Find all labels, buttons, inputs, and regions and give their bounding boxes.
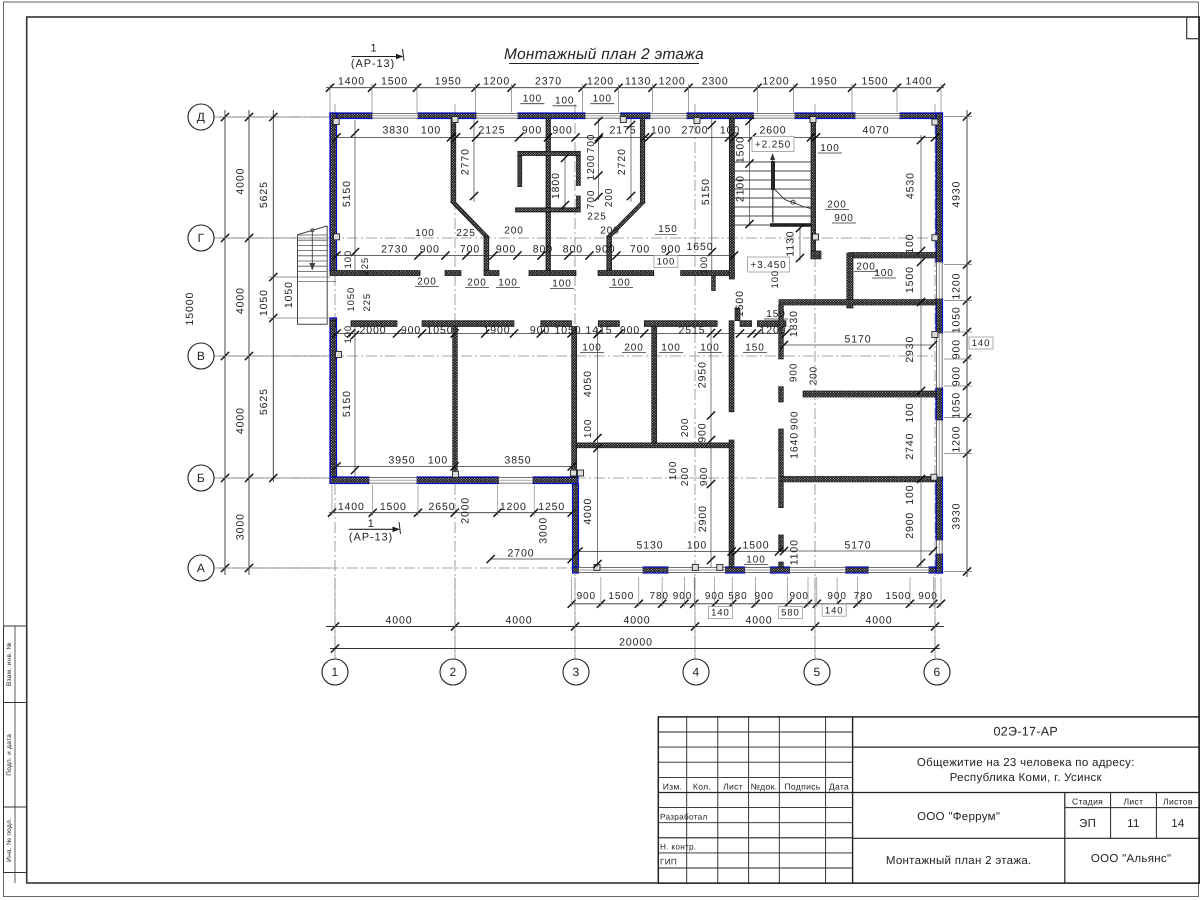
svg-text:900: 900 [789,363,800,382]
svg-text:2770: 2770 [460,148,472,175]
svg-text:ГИП: ГИП [660,858,677,867]
svg-text:700: 700 [630,244,650,256]
svg-text:900: 900 [620,325,640,337]
svg-text:100: 100 [904,484,916,504]
svg-text:900: 900 [951,339,963,359]
svg-text:+2.250: +2.250 [755,139,791,150]
svg-text:1650: 1650 [687,241,714,253]
svg-text:№док.: №док. [751,782,778,792]
svg-text:200: 200 [467,277,486,288]
svg-text:1500: 1500 [885,591,911,602]
svg-text:5170: 5170 [845,540,872,552]
svg-text:1200: 1200 [763,76,790,88]
svg-text:900: 900 [577,591,596,602]
svg-text:2740: 2740 [904,433,916,460]
svg-text:1050: 1050 [951,306,963,333]
svg-text:2730: 2730 [381,244,408,256]
svg-text:Взам. инв. №: Взам. инв. № [6,642,13,686]
svg-text:2175: 2175 [610,125,637,137]
svg-text:5625: 5625 [258,388,270,415]
svg-text:2300: 2300 [702,76,729,88]
svg-text:200: 200 [604,188,615,207]
svg-text:1200: 1200 [951,273,963,300]
svg-text:1100: 1100 [789,539,801,565]
svg-text:1500: 1500 [380,501,407,513]
svg-text:100: 100 [820,143,839,154]
svg-text:2370: 2370 [535,76,562,88]
svg-text:100: 100 [343,325,354,344]
svg-text:1500: 1500 [735,136,747,163]
svg-text:100: 100 [700,342,719,353]
svg-text:1200: 1200 [587,76,614,88]
svg-text:100: 100 [498,277,517,288]
svg-text:5: 5 [814,665,821,679]
svg-text:1950: 1950 [811,76,838,88]
svg-text:2600: 2600 [760,125,787,137]
svg-text:5150: 5150 [341,390,353,417]
svg-text:1400: 1400 [906,76,933,88]
svg-text:780: 780 [854,591,873,602]
svg-text:2700: 2700 [508,548,535,560]
svg-text:5625: 5625 [258,181,270,208]
svg-text:(АР-13): (АР-13) [351,58,395,70]
svg-text:ООО "Феррум": ООО "Феррум" [917,811,1000,823]
svg-text:+3.450: +3.450 [750,260,786,271]
svg-text:2100: 2100 [735,175,747,202]
svg-text:100: 100 [582,342,601,353]
svg-text:4000: 4000 [235,168,247,195]
svg-text:900: 900 [496,244,516,256]
svg-text:100: 100 [651,125,671,137]
svg-text:1050: 1050 [427,325,454,337]
svg-text:200: 200 [680,467,691,486]
svg-text:100: 100 [720,125,740,137]
svg-text:4000: 4000 [506,615,533,627]
svg-text:200: 200 [624,342,643,353]
svg-text:200: 200 [856,261,875,272]
svg-text:900: 900 [834,213,853,224]
svg-text:1050: 1050 [346,287,357,312]
svg-text:11: 11 [1127,818,1140,830]
svg-text:4050: 4050 [582,370,594,397]
svg-text:4000: 4000 [235,287,247,314]
svg-text:2000: 2000 [460,497,472,524]
svg-text:200: 200 [504,225,523,236]
svg-text:1200: 1200 [951,426,963,453]
svg-text:Лист: Лист [1123,797,1143,807]
svg-text:1050: 1050 [283,281,295,308]
svg-text:1130: 1130 [785,231,797,257]
svg-text:200: 200 [680,418,691,437]
svg-text:4000: 4000 [582,498,594,525]
svg-text:100: 100 [661,342,680,353]
svg-text:4000: 4000 [624,615,651,627]
svg-text:900: 900 [790,411,801,430]
svg-text:900: 900 [595,244,615,256]
svg-text:900: 900 [951,366,963,386]
svg-text:2950: 2950 [697,361,709,388]
svg-text:800: 800 [563,244,583,256]
svg-text:3850: 3850 [505,455,532,467]
svg-text:2125: 2125 [479,125,506,137]
svg-text:4000: 4000 [746,615,773,627]
svg-text:1415: 1415 [586,325,613,337]
svg-text:Лист: Лист [723,782,743,792]
svg-text:20000: 20000 [619,637,653,649]
svg-text:1200: 1200 [760,325,787,337]
svg-text:15000: 15000 [184,292,196,326]
svg-text:4070: 4070 [863,125,890,137]
svg-text:900: 900 [661,244,681,256]
svg-text:140: 140 [825,605,844,616]
svg-text:Дата: Дата [829,782,849,792]
svg-text:580: 580 [728,591,747,602]
svg-text:100: 100 [415,228,434,239]
svg-text:1250: 1250 [538,501,565,513]
svg-text:4530: 4530 [905,172,917,199]
svg-text:2: 2 [450,665,457,679]
svg-text:150: 150 [745,342,764,353]
svg-text:2900: 2900 [697,505,709,532]
svg-text:4000: 4000 [235,407,247,434]
svg-text:900: 900 [552,125,572,137]
svg-text:Изм.: Изм. [663,782,683,792]
svg-text:1950: 1950 [435,76,462,88]
svg-text:Общежитие на 23 человека по ад: Общежитие на 23 человека по адресу: [917,757,1135,769]
svg-text:225: 225 [587,211,606,222]
svg-text:Кол.: Кол. [693,782,711,792]
svg-text:Б: Б [197,471,205,485]
svg-text:900: 900 [755,591,774,602]
svg-text:1500: 1500 [734,290,746,317]
svg-text:5130: 5130 [637,540,664,552]
svg-text:1050: 1050 [258,289,270,316]
svg-text:5150: 5150 [700,178,712,205]
svg-text:4000: 4000 [386,615,413,627]
svg-text:Инв. № подл.: Инв. № подл. [6,818,13,862]
svg-text:1900: 1900 [484,325,511,337]
svg-text:2720: 2720 [616,148,628,175]
svg-text:Республика Коми, г. Усинск: Республика Коми, г. Усинск [950,772,1103,784]
svg-text:140: 140 [972,338,991,349]
svg-text:900: 900 [699,467,710,486]
svg-text:100: 100 [611,277,630,288]
svg-text:Разработал: Разработал [660,813,708,822]
svg-text:1500: 1500 [608,591,634,602]
svg-text:14: 14 [1171,818,1185,830]
svg-text:900: 900 [420,244,440,256]
svg-text:100: 100 [687,540,707,552]
svg-text:4: 4 [693,665,700,679]
svg-text:Монтажный план 2 этажа: Монтажный план 2 этажа [504,46,704,63]
svg-text:ООО "Альянс": ООО "Альянс" [1091,853,1172,865]
svg-text:1: 1 [332,665,339,679]
svg-text:1400: 1400 [338,501,365,513]
svg-text:100: 100 [657,257,676,268]
svg-text:1640: 1640 [789,432,801,459]
svg-text:1200: 1200 [586,154,597,180]
svg-text:100: 100 [668,461,679,480]
svg-text:Г: Г [198,231,205,245]
svg-text:800: 800 [533,244,553,256]
svg-text:1: 1 [368,518,375,530]
svg-text:2515: 2515 [679,325,706,337]
svg-text:900: 900 [827,591,846,602]
svg-text:100: 100 [421,125,441,137]
svg-text:700: 700 [586,190,597,209]
svg-text:900: 900 [673,591,692,602]
svg-text:ЭП: ЭП [1079,818,1096,830]
svg-text:1050: 1050 [951,392,963,419]
svg-text:1500: 1500 [743,540,770,552]
svg-text:3930: 3930 [951,503,963,530]
svg-text:1830: 1830 [788,310,800,337]
svg-text:100: 100 [428,455,448,467]
svg-text:4000: 4000 [866,615,893,627]
svg-text:100: 100 [904,233,916,253]
svg-text:2900: 2900 [904,512,916,539]
svg-text:Подпись: Подпись [784,782,820,792]
svg-text:100: 100 [552,278,571,289]
svg-text:225: 225 [362,293,373,312]
svg-text:150: 150 [766,309,785,320]
svg-text:100: 100 [593,94,612,105]
svg-text:100: 100 [874,268,893,279]
svg-text:150: 150 [658,224,677,235]
svg-text:140: 140 [711,608,730,619]
svg-text:4930: 4930 [951,181,963,208]
svg-text:3830: 3830 [383,125,410,137]
svg-text:1200: 1200 [483,76,510,88]
svg-text:Д: Д [197,110,205,124]
svg-text:100: 100 [746,554,765,565]
svg-text:Листов: Листов [1163,797,1193,807]
svg-text:200: 200 [417,276,436,287]
svg-text:900: 900 [530,325,550,337]
svg-text:100: 100 [523,94,542,105]
svg-text:(АР-13): (АР-13) [349,532,393,544]
svg-text:В: В [197,349,205,363]
svg-text:3000: 3000 [538,517,550,544]
svg-text:580: 580 [781,608,800,619]
svg-text:900: 900 [522,125,542,137]
svg-text:900: 900 [697,422,709,442]
svg-text:700: 700 [586,134,597,153]
svg-text:900: 900 [705,591,724,602]
svg-text:3000: 3000 [235,513,247,540]
svg-text:1500: 1500 [381,76,408,88]
svg-text:100: 100 [583,419,594,438]
svg-text:1130: 1130 [625,76,651,88]
svg-text:225: 225 [360,257,371,276]
svg-text:100: 100 [343,250,354,269]
svg-text:100: 100 [904,402,916,422]
svg-text:225: 225 [456,228,475,239]
svg-text:3950: 3950 [389,455,416,467]
svg-text:1400: 1400 [338,76,365,88]
svg-text:200: 200 [827,199,846,210]
svg-text:Монтажный план 2 этажа.: Монтажный план 2 этажа. [886,855,1032,867]
svg-text:Подп. и дата: Подп. и дата [6,734,13,776]
svg-text:200: 200 [809,366,820,385]
svg-text:А: А [197,561,205,575]
svg-text:700: 700 [460,244,480,256]
svg-text:780: 780 [650,591,669,602]
svg-text:1800: 1800 [550,172,562,199]
svg-text:2700: 2700 [682,125,709,137]
svg-text:1200: 1200 [500,501,527,513]
svg-text:100: 100 [555,96,574,107]
svg-text:1500: 1500 [904,266,916,293]
svg-text:900: 900 [401,325,421,337]
svg-text:1050: 1050 [555,325,582,337]
svg-text:2000: 2000 [360,325,387,337]
svg-text:02Э-17-АР: 02Э-17-АР [994,725,1059,739]
svg-text:5170: 5170 [845,334,872,346]
svg-text:100: 100 [699,256,710,275]
svg-text:200: 200 [600,225,619,236]
svg-text:1200: 1200 [659,76,686,88]
svg-text:2650: 2650 [429,501,456,513]
svg-text:900: 900 [790,591,809,602]
svg-text:1: 1 [370,43,377,55]
svg-text:6: 6 [934,665,941,679]
svg-text:3: 3 [573,665,580,679]
svg-text:2930: 2930 [904,336,916,363]
svg-text:1500: 1500 [862,76,889,88]
svg-text:5150: 5150 [341,180,353,207]
svg-text:Н. контр.: Н. контр. [660,843,697,852]
svg-text:100: 100 [770,270,781,289]
svg-text:Стадия: Стадия [1072,797,1103,807]
